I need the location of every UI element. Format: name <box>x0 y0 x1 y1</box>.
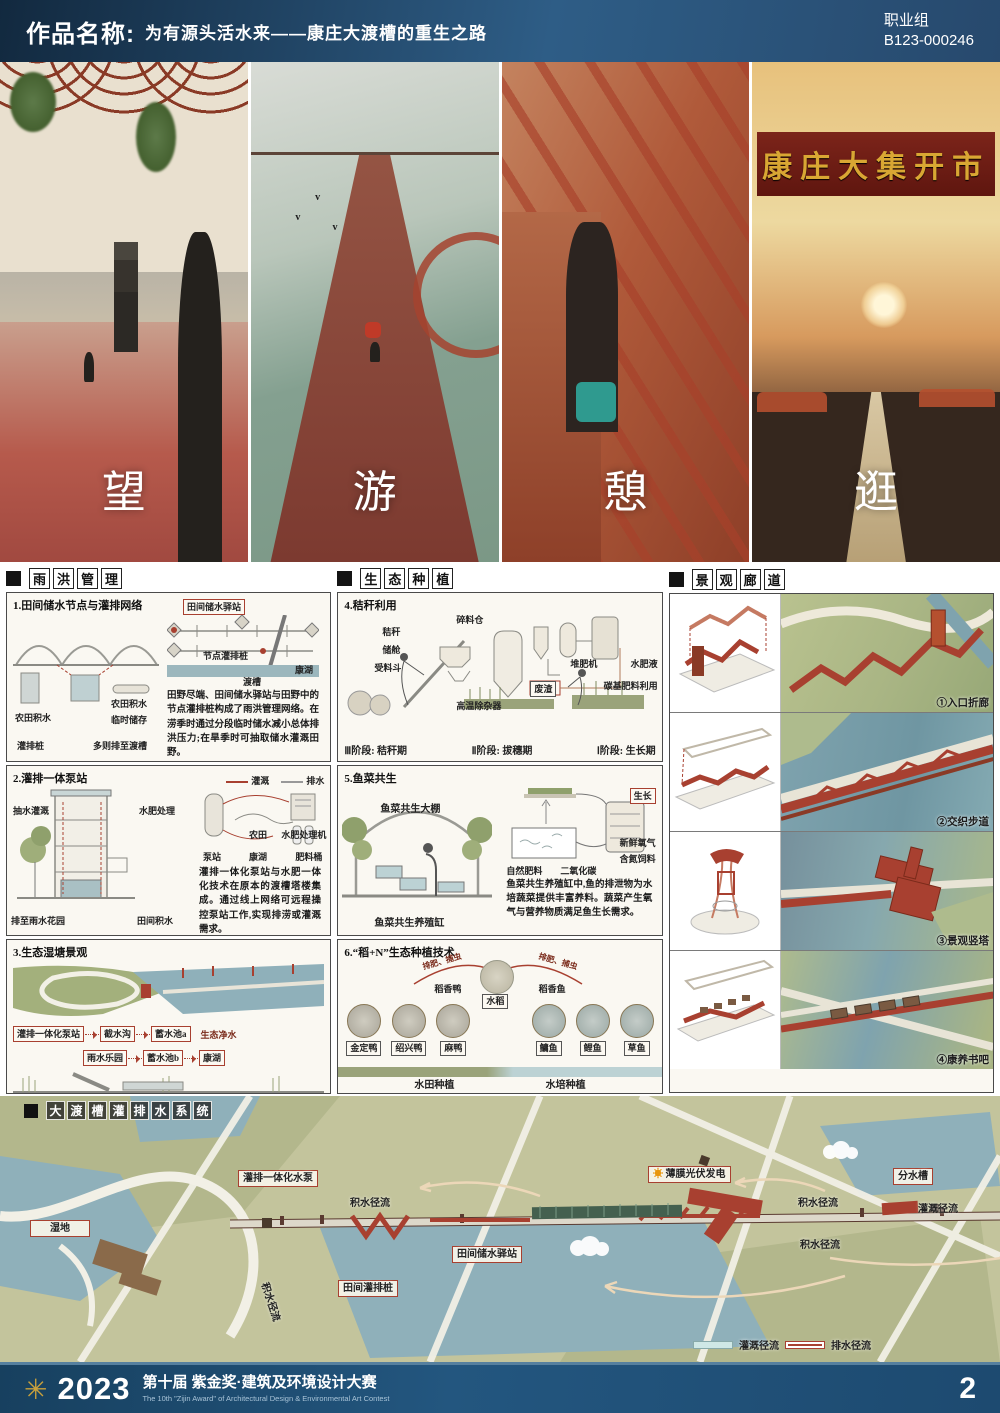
corridor-caption: ④康养书吧 <box>936 1052 989 1067</box>
fish-photo-circle <box>576 1004 610 1038</box>
map-title-char: 统 <box>193 1101 212 1120</box>
label-eco-purify: 生态净水 <box>201 1028 237 1041</box>
hero-char-qi: 憩 <box>603 456 647 520</box>
irrigation-line-icon <box>226 781 248 783</box>
label-pump-irrigate: 抽水灌溉 <box>13 804 49 817</box>
panel-pump-station: 2.灌排一体泵站 灌溉 排水 抽水灌溉 水肥处理 排至雨水花园 田间积水 <box>6 765 331 937</box>
map-label-pump: 灌排一体化水泵 <box>238 1170 318 1187</box>
label-lake: 康湖 <box>295 663 313 676</box>
title-char: 生 <box>360 568 381 589</box>
map-label-irrigation-runoff: 灌溉径流 <box>918 1200 958 1215</box>
section-marker <box>337 571 352 586</box>
label-hydroponic-planting: 水培种植 <box>546 1076 586 1091</box>
title-char: 洪 <box>53 568 74 589</box>
map-label-runoff-b: 积水径流 <box>798 1194 838 1209</box>
title-char: 道 <box>764 569 785 590</box>
map-label-field-pile: 田间灌排桩 <box>338 1280 398 1297</box>
map-title-char: 水 <box>151 1101 170 1120</box>
map-label-runoff-c: 积水径流 <box>800 1236 840 1251</box>
axon-sketch <box>670 594 780 712</box>
axon-sketch <box>670 832 780 950</box>
map-label-divider: 分水槽 <box>893 1168 933 1185</box>
legend-irrigation: 灌溉 <box>251 776 269 786</box>
flow-reservoir-b: 蓄水池b <box>143 1050 183 1066</box>
title-char: 植 <box>432 568 453 589</box>
map-graphic <box>0 1096 1000 1362</box>
render-view-wang: 望 <box>0 62 248 562</box>
panel-aquaponics: 5.鱼菜共生 鱼菜共生大棚 鱼菜共生养殖缸 <box>337 765 662 937</box>
label-node-pile: 节点灌排桩 <box>203 649 248 662</box>
label-co2: 二氧化碳 <box>560 864 596 877</box>
dotted-arrow-icon <box>184 1058 198 1059</box>
column-eco-planting: 生 态 种 植 4.秸秆利用 <box>337 566 662 1094</box>
label-natural-fert: 自然肥料 <box>506 864 542 877</box>
corridor-render: ③景观竖塔 <box>781 832 993 950</box>
corridor-caption: ①入口折廊 <box>936 695 989 710</box>
label-remover: 高温除杂器 <box>456 699 501 712</box>
map-label-storage-station: 田间储水驿站 <box>452 1246 522 1263</box>
footer-bar: ✳ 2023 第十届 紫金奖·建筑及环境设计大赛 The 10th "Zijin… <box>0 1362 1000 1413</box>
corridor-row-weave: ②交织步道 <box>670 713 993 832</box>
bridge-rail-graphic <box>251 152 499 155</box>
header-bar: 作品名称: 为有源头活水来——康庄大渡槽的重生之路 职业组 B123-00024… <box>0 0 1000 62</box>
running-child-graphic <box>370 342 380 362</box>
pond-flow-row-2: 雨水乐园 蓄水池b 康湖 <box>83 1050 324 1066</box>
stall-canopy-graphic <box>757 392 827 412</box>
pond-section-sketch <box>13 1070 324 1094</box>
label-fish-group: 稻香鱼 <box>539 982 566 995</box>
map-title-marker <box>24 1104 38 1118</box>
title-char: 管 <box>77 568 98 589</box>
fish-item: 鳙鱼 <box>532 1004 566 1056</box>
footer-contest: 第十届 紫金奖·建筑及环境设计大赛 The 10th "Zijin Award"… <box>142 1375 389 1403</box>
label-duck-group: 稻香鸭 <box>434 982 461 995</box>
label-pump: 泵站 <box>203 850 221 863</box>
column-corridor: 景 观 廊 道 <box>669 566 994 1094</box>
label-composter: 堆肥机 <box>570 657 597 670</box>
irrigation-drainage-legend: 灌溉 排水 <box>226 771 324 789</box>
corridor-render: ②交织步道 <box>781 713 993 831</box>
analysis-section: 雨 洪 管 理 1.田间储水节点与灌排网络 农田积水 农田积水 临时储存 灌排桩… <box>0 566 1000 1094</box>
panel-rice-plus-n: 6.“稻+N”生态种植技术 排肥、捕虫 排肥、捕虫 水稻 稻香鸭 稻香鱼 金定鸭 <box>337 939 662 1094</box>
map-title-char: 大 <box>46 1101 65 1120</box>
flow-lake: 康湖 <box>199 1050 225 1066</box>
legend-irrigation-label: 灌溉径流 <box>739 1337 779 1352</box>
fish-photo-circle <box>532 1004 566 1038</box>
panel-straw-use: 4.秸秆利用 秸秆 储舱 受料斗 碎料仓 <box>337 592 662 762</box>
section-title-stormwater: 雨 洪 管 理 <box>6 568 331 589</box>
title-char: 理 <box>101 568 122 589</box>
planting-ground-strip <box>338 1067 661 1077</box>
legend-drainage-label: 排水径流 <box>831 1337 871 1352</box>
label-to-rain-garden: 排至雨水花园 <box>11 914 65 927</box>
stage-2: Ⅱ阶段: 拔穗期 <box>472 742 533 757</box>
label-paddy-planting: 水田种植 <box>414 1076 454 1091</box>
label-carbon-fert: 碳基肥料利用 <box>604 679 658 692</box>
running-child-graphic <box>365 322 381 338</box>
axon-sketch <box>670 713 780 831</box>
axon-thumb <box>670 713 781 831</box>
duck-name: 麻鸭 <box>440 1041 466 1056</box>
section-title-corridor: 景 观 廊 道 <box>669 568 994 590</box>
zijin-award-logo: ✳ <box>24 1373 47 1406</box>
contest-subtitle: The 10th "Zijin Award" of Architectural … <box>142 1394 389 1403</box>
map-title-char: 系 <box>172 1101 191 1120</box>
label-liquid-fert: 水肥液 <box>631 657 658 670</box>
panel-text: 灌排一体化泵站与水肥一体化技术在原本的渡槽塔楼集成。通过线上网络可远程操控泵站工… <box>199 866 321 937</box>
duck-photo-circle <box>392 1004 426 1038</box>
contest-title: 第十届 紫金奖·建筑及环境设计大赛 <box>142 1375 389 1392</box>
fish-name: 鳙鱼 <box>536 1041 562 1056</box>
figure-silhouette <box>178 232 222 562</box>
label-aqueduct: 渡槽 <box>243 675 261 688</box>
hero-char-wang: 望 <box>102 456 146 520</box>
stall-canopy-graphic <box>919 389 995 407</box>
render-view-guang: 康庄大集开市 逛 <box>752 62 1000 562</box>
flow-reservoir-a: 蓄水池a <box>151 1026 191 1042</box>
work-name-label: 作品名称: <box>26 14 135 49</box>
corridor-row-tower: ③景观竖塔 <box>670 832 993 951</box>
corridor-caption: ②交织步道 <box>936 814 989 829</box>
label-waste: 废渣 <box>530 681 556 697</box>
stage-1: Ⅰ阶段: 生长期 <box>597 742 656 757</box>
section-marker <box>6 571 21 586</box>
label-hopper: 受料斗 <box>374 661 401 674</box>
label-straw: 秸秆 <box>382 625 400 638</box>
fish-item: 鲤鱼 <box>576 1004 610 1056</box>
render-view-qi: 憩 <box>502 62 750 562</box>
map-label-wetland: 湿地 <box>30 1220 90 1237</box>
drainage-runoff-swatch <box>785 1341 825 1349</box>
label-farm: 农田 <box>249 828 267 841</box>
dotted-arrow-icon <box>85 1034 99 1035</box>
title-char: 景 <box>692 569 713 590</box>
label-temp-storage: 临时储存 <box>111 713 147 726</box>
corridor-row-bookbar: ④康养书吧 <box>670 951 993 1069</box>
corridor-caption: ③景观竖塔 <box>936 933 989 948</box>
render-view-you: v v v 游 <box>251 62 499 562</box>
hero-renders: 望 v v v 游 憩 康庄大集开市 逛 <box>0 62 1000 562</box>
map-legend: 灌溉径流 排水径流 <box>693 1337 871 1352</box>
panel-storage-network: 1.田间储水节点与灌排网络 农田积水 农田积水 临时储存 灌排桩 多则排至渡槽 <box>6 592 331 762</box>
footer-year: 2023 <box>57 1371 130 1407</box>
sun-icon: ☀ <box>653 1169 666 1180</box>
label-cabin: 储舱 <box>382 643 400 656</box>
duck-circles: 金定鸭 绍兴鸭 麻鸭 <box>346 1004 470 1056</box>
map-title-char: 槽 <box>88 1101 107 1120</box>
corridor-row-entry: ①入口折廊 <box>670 594 993 713</box>
duck-photo-circle <box>347 1004 381 1038</box>
label-grow: 生长 <box>630 788 656 804</box>
hero-char-guang: 逛 <box>854 456 898 520</box>
label-tank: 鱼菜共生养殖缸 <box>374 914 444 929</box>
label-nitrogen-feed: 含氮饲料 <box>620 852 656 865</box>
flow-pump-station: 灌排一体化泵站 <box>13 1026 84 1042</box>
bird-icon: v <box>333 222 338 233</box>
label-silo: 碎料仓 <box>456 613 483 626</box>
map-title-char: 排 <box>130 1101 149 1120</box>
column-stormwater: 雨 洪 管 理 1.田间储水节点与灌排网络 农田积水 农田积水 临时储存 灌排桩… <box>6 566 331 1094</box>
stage-3: Ⅲ阶段: 秸秆期 <box>344 742 407 757</box>
fish-name: 草鱼 <box>624 1041 650 1056</box>
sunset-glow-graphic <box>861 282 907 328</box>
panel-title: 5.鱼菜共生 <box>344 770 655 786</box>
label-field-ponding: 田间积水 <box>137 914 173 927</box>
masterplan-map: 大 渡 槽 灌 排 水 系 统 湿地 灌排一体化水泵 积水径流 ☀ 薄膜光伏发电… <box>0 1096 1000 1362</box>
corridor-rows-panel: ①入口折廊 <box>669 593 994 1093</box>
pond-flow-row-1: 灌排一体化泵站 截水沟 蓄水池a 生态净水 <box>13 1026 324 1042</box>
banner-text: 康庄大集开市 <box>762 142 990 186</box>
fish-circles: 鳙鱼 鲤鱼 草鱼 <box>532 1004 654 1056</box>
panel-wetland-pond: 3.生态湿塘景观 灌排一体化泵站 截水沟 蓄水池a 生态净水 雨水乐园 <box>6 939 331 1094</box>
duck-name: 金定鸭 <box>346 1041 381 1056</box>
flow-intercept-ditch: 截水沟 <box>100 1026 135 1042</box>
label-pile: 灌排桩 <box>17 739 44 752</box>
label-fresh-oxygen: 新鲜氧气 <box>620 836 656 849</box>
duck-name: 绍兴鸭 <box>391 1041 426 1056</box>
rice-photo-circle <box>480 960 514 994</box>
label-fert-barrel: 肥料桶 <box>295 850 322 863</box>
corridor-render: ①入口折廊 <box>781 594 993 712</box>
map-title-char: 渡 <box>67 1101 86 1120</box>
teal-shorts-accent <box>576 382 616 422</box>
panel-text: 田野尽端、田间储水驿站与田野中的节点灌排桩构成了雨洪管理网络。在涝季时通过分段临… <box>167 689 319 760</box>
hero-char-you: 游 <box>353 456 397 520</box>
irrigation-runoff-swatch <box>693 1341 733 1349</box>
page-number: 2 <box>959 1372 976 1406</box>
work-title: 为有源头活水来——康庄大渡槽的重生之路 <box>145 19 487 44</box>
map-title-char: 灌 <box>109 1101 128 1120</box>
market-banner: 康庄大集开市 <box>757 132 995 196</box>
bird-icon: v <box>315 192 320 203</box>
wetland-aerial-sketch <box>13 962 324 1020</box>
section-marker <box>669 572 684 587</box>
corridor-render: ④康养书吧 <box>781 951 993 1069</box>
duck-item: 绍兴鸭 <box>391 1004 426 1056</box>
title-char: 观 <box>716 569 737 590</box>
entry-info: 职业组 B123-000246 <box>884 11 974 52</box>
label-lake2: 康湖 <box>249 850 267 863</box>
label-field-water-left: 农田积水 <box>15 711 51 724</box>
fish-photo-circle <box>620 1004 654 1038</box>
duck-photo-circle <box>436 1004 470 1038</box>
axon-thumb <box>670 594 781 712</box>
title-char: 种 <box>408 568 429 589</box>
dotted-arrow-icon <box>136 1034 150 1035</box>
title-char: 廊 <box>740 569 761 590</box>
bird-icon: v <box>295 212 300 223</box>
duck-item: 麻鸭 <box>436 1004 470 1056</box>
drainage-line-icon <box>281 781 303 783</box>
flow-rain-park: 雨水乐园 <box>83 1050 127 1066</box>
label-field-water-right: 农田积水 <box>111 697 147 710</box>
map-label-runoff-a: 积水径流 <box>350 1194 390 1209</box>
axon-sketch <box>670 951 780 1069</box>
label-storage-station: 田间储水驿站 <box>183 599 245 615</box>
panel-text: 鱼菜共生养殖缸中,鱼的排泄物为水培蔬菜提供丰富养料。蔬菜产生氧气与营养物质满足鱼… <box>506 878 652 921</box>
title-char: 态 <box>384 568 405 589</box>
label-fert-machine: 水肥处理机 <box>281 828 326 841</box>
duck-item: 金定鸭 <box>346 1004 381 1056</box>
hanging-plant-graphic <box>10 72 56 132</box>
panel-title: 3.生态湿塘景观 <box>13 944 324 960</box>
section-title-eco-planting: 生 态 种 植 <box>337 568 662 589</box>
label-rice: 水稻 <box>482 994 508 1009</box>
dotted-arrow-icon <box>128 1058 142 1059</box>
legend-drainage: 排水 <box>306 776 324 786</box>
fish-name: 鲤鱼 <box>580 1041 606 1056</box>
label-fert-process: 水肥处理 <box>139 804 175 817</box>
growth-stages-row: Ⅲ阶段: 秸秆期 Ⅱ阶段: 拔穗期 Ⅰ阶段: 生长期 <box>344 742 655 757</box>
label-greenhouse: 鱼菜共生大棚 <box>380 800 440 815</box>
label-overflow: 多则排至渡槽 <box>93 739 147 752</box>
entry-code: B123-000246 <box>884 31 974 51</box>
panel-title: 1.田间储水节点与灌排网络 <box>13 597 324 613</box>
axon-thumb <box>670 832 781 950</box>
axon-thumb <box>670 951 781 1069</box>
figure-silhouette <box>84 352 94 382</box>
aqueduct-tower-graphic <box>114 242 138 352</box>
title-char: 雨 <box>29 568 50 589</box>
map-title: 大 渡 槽 灌 排 水 系 统 <box>24 1101 212 1120</box>
hanging-plant-graphic <box>136 102 176 172</box>
map-label-pv: ☀ 薄膜光伏发电 <box>648 1166 731 1183</box>
fish-item: 草鱼 <box>620 1004 654 1056</box>
entry-group: 职业组 <box>884 11 974 31</box>
